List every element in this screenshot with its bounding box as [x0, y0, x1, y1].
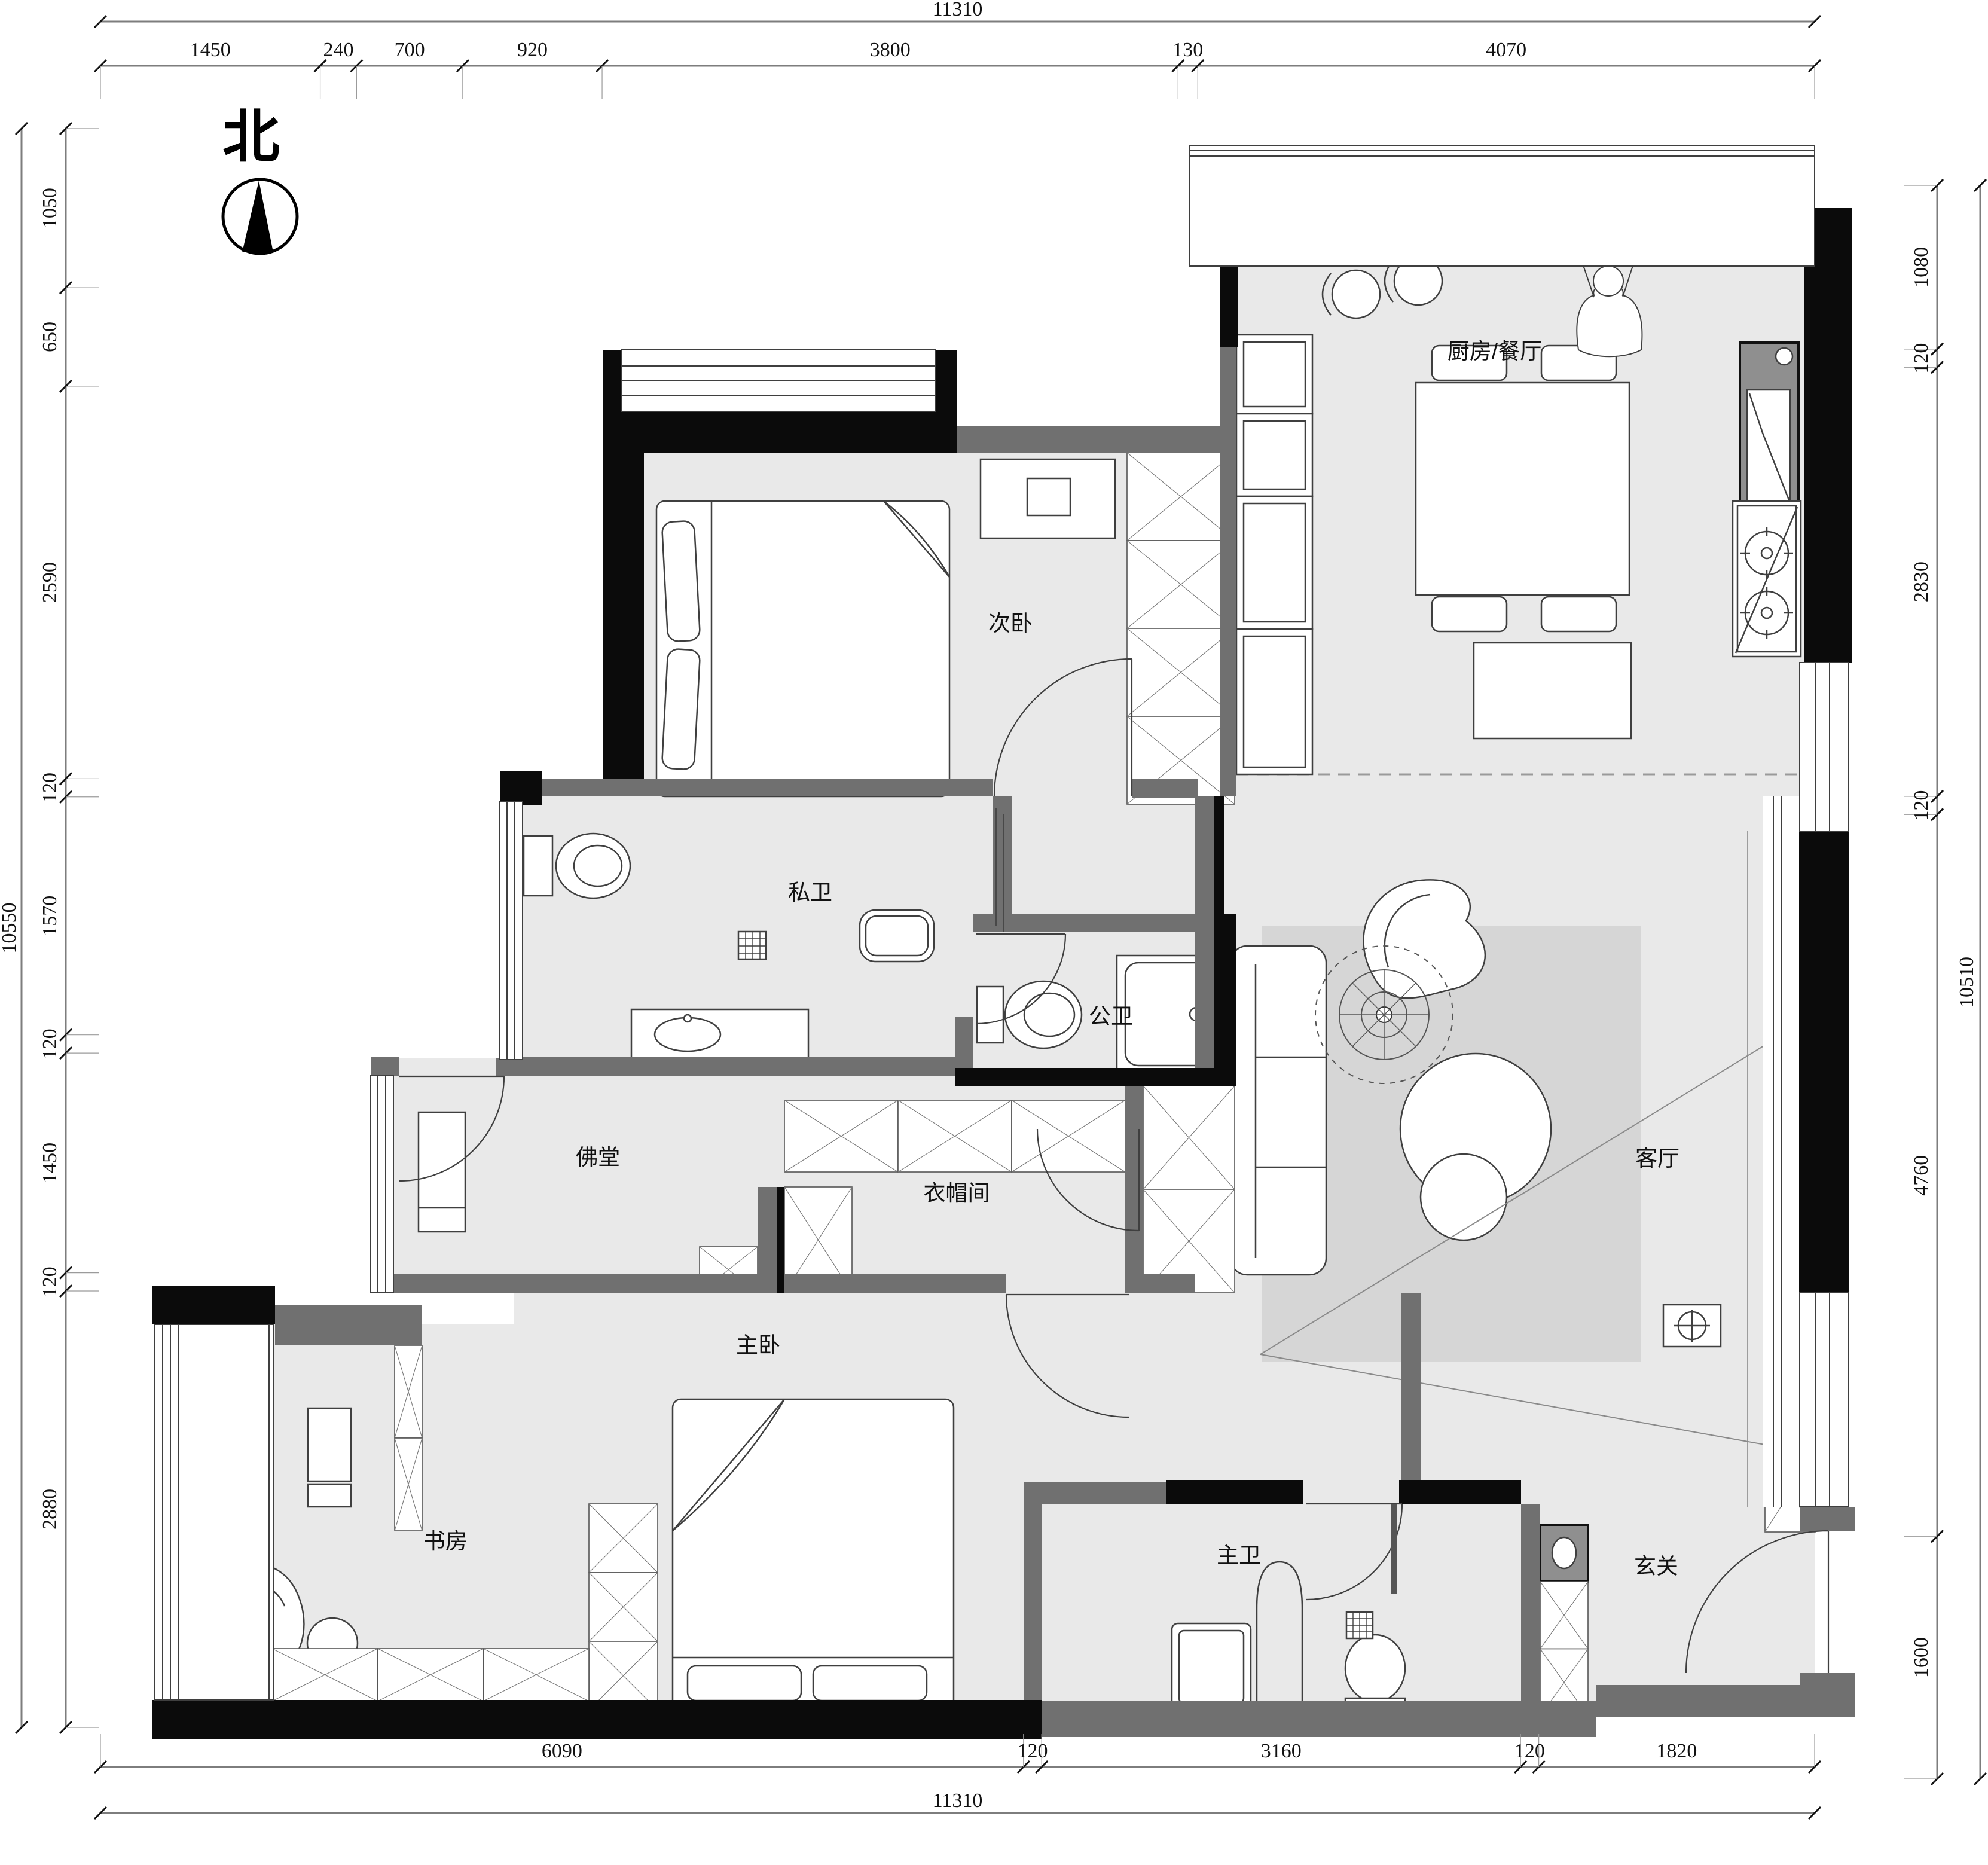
fridge: [1740, 343, 1798, 509]
room-label-private-bath: 私卫: [788, 880, 832, 905]
kitchen-balcony: [1190, 145, 1815, 266]
svg-text:1600: 1600: [1910, 1637, 1932, 1678]
svg-text:120: 120: [1910, 790, 1932, 821]
svg-text:120: 120: [39, 773, 61, 803]
dresser-secondary: [981, 459, 1115, 538]
lounge-chair-living: [1363, 880, 1485, 998]
cooktop: [1733, 501, 1801, 657]
svg-text:3800: 3800: [870, 39, 911, 61]
floor-plan-page: 次卧 厨房/餐厅 私卫 公卫 佛堂 衣帽间 客厅 主卧 书房 主卫 玄关 北 1…: [0, 0, 1988, 1865]
svg-text:120: 120: [1017, 1740, 1048, 1762]
svg-text:10510: 10510: [1956, 957, 1978, 1008]
svg-text:10550: 10550: [0, 903, 20, 954]
entry-niche: [1540, 1525, 1588, 1582]
svg-text:11310: 11310: [933, 1790, 983, 1812]
wardrobe-secondary: [1127, 453, 1235, 804]
floor-socket-box: [1663, 1305, 1721, 1347]
svg-text:6090: 6090: [542, 1740, 582, 1762]
coffee-table-small: [1421, 1154, 1507, 1240]
svg-text:1450: 1450: [190, 39, 231, 61]
study-bottom-bookcase: [272, 1649, 589, 1701]
room-label-cloakroom: 衣帽间: [924, 1181, 990, 1205]
svg-text:2880: 2880: [39, 1489, 61, 1530]
entry-side-cabinet: [1540, 1582, 1588, 1716]
study-window-cabinet: [395, 1345, 422, 1531]
svg-text:4070: 4070: [1486, 39, 1526, 61]
svg-text:3160: 3160: [1261, 1740, 1302, 1762]
window-kitchen-east: [1800, 663, 1849, 831]
room-label-buddhist-hall: 佛堂: [576, 1145, 620, 1170]
window-entry-east: [1800, 1293, 1849, 1507]
room-label-master-bedroom: 主卧: [736, 1333, 780, 1357]
svg-text:1570: 1570: [39, 896, 61, 936]
dim-left: 1055010506502590120157012014501202880: [0, 123, 99, 1733]
svg-text:2830: 2830: [1910, 561, 1932, 602]
bed-secondary: [656, 501, 949, 796]
svg-text:120: 120: [39, 1266, 61, 1297]
svg-text:120: 120: [1910, 343, 1932, 374]
svg-text:2590: 2590: [39, 562, 61, 603]
dim-top: 11310145024070092038001304070: [94, 0, 1821, 99]
svg-text:120: 120: [39, 1028, 61, 1059]
sofa: [1230, 946, 1326, 1275]
room-label-secondary-bedroom: 次卧: [988, 611, 1033, 636]
svg-text:920: 920: [517, 39, 548, 61]
window-private-bath: [500, 801, 523, 1060]
svg-text:4760: 4760: [1910, 1155, 1932, 1196]
room-label-kitchen-dining: 厨房/餐厅: [1448, 339, 1542, 364]
svg-text:11310: 11310: [933, 0, 983, 20]
dim-bottom: 11310609012031601201820: [94, 1734, 1821, 1819]
kitchen-cabinet-column: [1236, 335, 1312, 774]
study-balcony: [154, 1324, 274, 1700]
room-label-master-bath: 主卫: [1217, 1543, 1261, 1568]
dim-right: 105101080120283012047601600: [1904, 179, 1986, 1785]
svg-text:1080: 1080: [1910, 247, 1932, 288]
svg-text:1820: 1820: [1656, 1740, 1697, 1762]
window-buddhist-hall: [371, 1075, 393, 1293]
svg-text:130: 130: [1172, 39, 1203, 61]
svg-text:700: 700: [395, 39, 425, 61]
north-label: 北: [222, 105, 280, 169]
hall-cabinet-east: [1143, 1086, 1235, 1293]
svg-text:1050: 1050: [39, 188, 61, 228]
room-label-public-bath: 公卫: [1089, 1004, 1133, 1028]
sliding-door-master-bath: [1391, 1504, 1397, 1594]
svg-text:1450: 1450: [39, 1143, 61, 1183]
north-arrow: 北: [222, 105, 297, 254]
svg-text:120: 120: [1514, 1740, 1545, 1762]
room-label-living-room: 客厅: [1635, 1146, 1679, 1171]
study-desk: [308, 1408, 351, 1507]
svg-text:240: 240: [323, 39, 353, 61]
svg-text:650: 650: [39, 322, 61, 352]
master-study-wardrobe: [589, 1504, 658, 1710]
bed-master: [673, 1399, 954, 1715]
room-label-entryway: 玄关: [1634, 1554, 1678, 1579]
room-label-study: 书房: [423, 1529, 468, 1553]
window-secondary-bedroom: [622, 350, 936, 411]
cloakroom-top-cabinet: [784, 1100, 1125, 1172]
